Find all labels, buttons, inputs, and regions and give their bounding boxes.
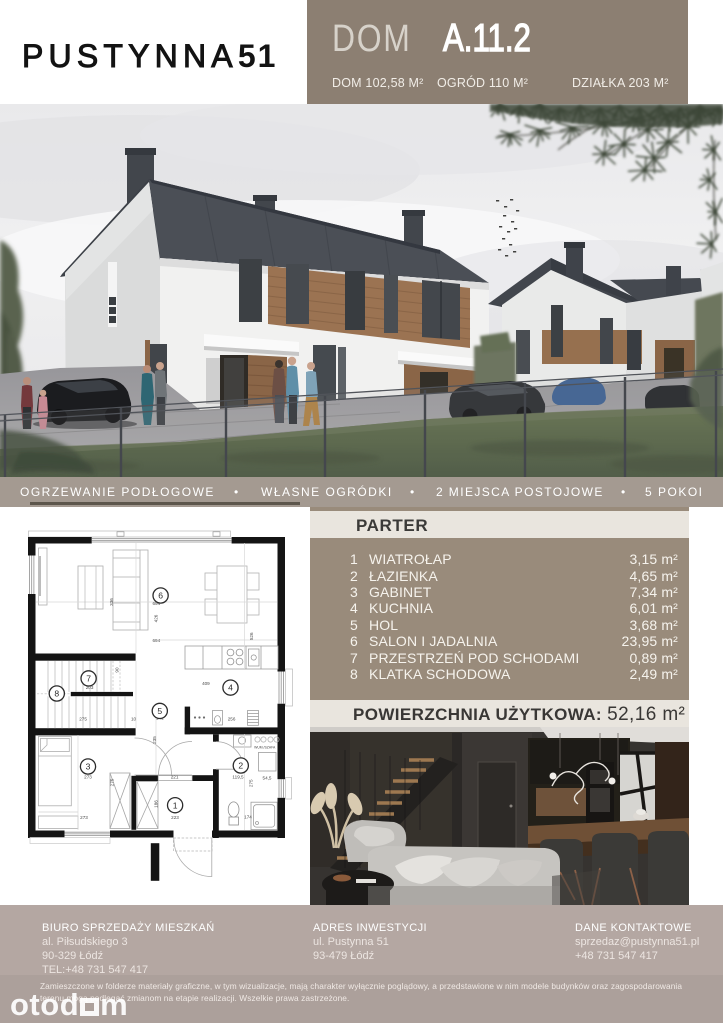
- svg-text:275: 275: [79, 716, 87, 721]
- svg-text:256: 256: [228, 717, 236, 722]
- svg-text:3: 3: [86, 762, 91, 772]
- svg-text:694: 694: [152, 638, 160, 643]
- svg-text:2: 2: [238, 761, 243, 771]
- svg-text:186: 186: [153, 800, 158, 808]
- svg-text:409: 409: [202, 681, 210, 686]
- svg-text:526: 526: [249, 632, 254, 640]
- svg-text:8: 8: [54, 689, 59, 699]
- svg-text:275: 275: [110, 778, 115, 786]
- svg-text:5: 5: [157, 706, 162, 716]
- svg-text:7: 7: [86, 674, 91, 684]
- svg-text:275: 275: [249, 779, 254, 787]
- svg-text:235: 235: [152, 736, 157, 744]
- svg-text:4: 4: [228, 683, 233, 693]
- svg-text:174: 174: [244, 814, 252, 819]
- svg-text:6: 6: [158, 591, 163, 601]
- svg-text:273: 273: [84, 775, 92, 780]
- svg-text:221: 221: [171, 774, 179, 779]
- svg-text:273: 273: [80, 815, 88, 820]
- svg-text:54,5: 54,5: [263, 775, 272, 780]
- svg-text:223: 223: [171, 815, 179, 820]
- svg-text:336: 336: [109, 598, 114, 606]
- svg-text:426: 426: [154, 614, 159, 622]
- svg-text:90: 90: [115, 667, 120, 673]
- svg-text:10: 10: [131, 716, 137, 721]
- svg-text:1: 1: [173, 800, 178, 810]
- svg-text:WUM./SZAFA: WUM./SZAFA: [254, 745, 276, 749]
- svg-text:119,5: 119,5: [232, 774, 244, 779]
